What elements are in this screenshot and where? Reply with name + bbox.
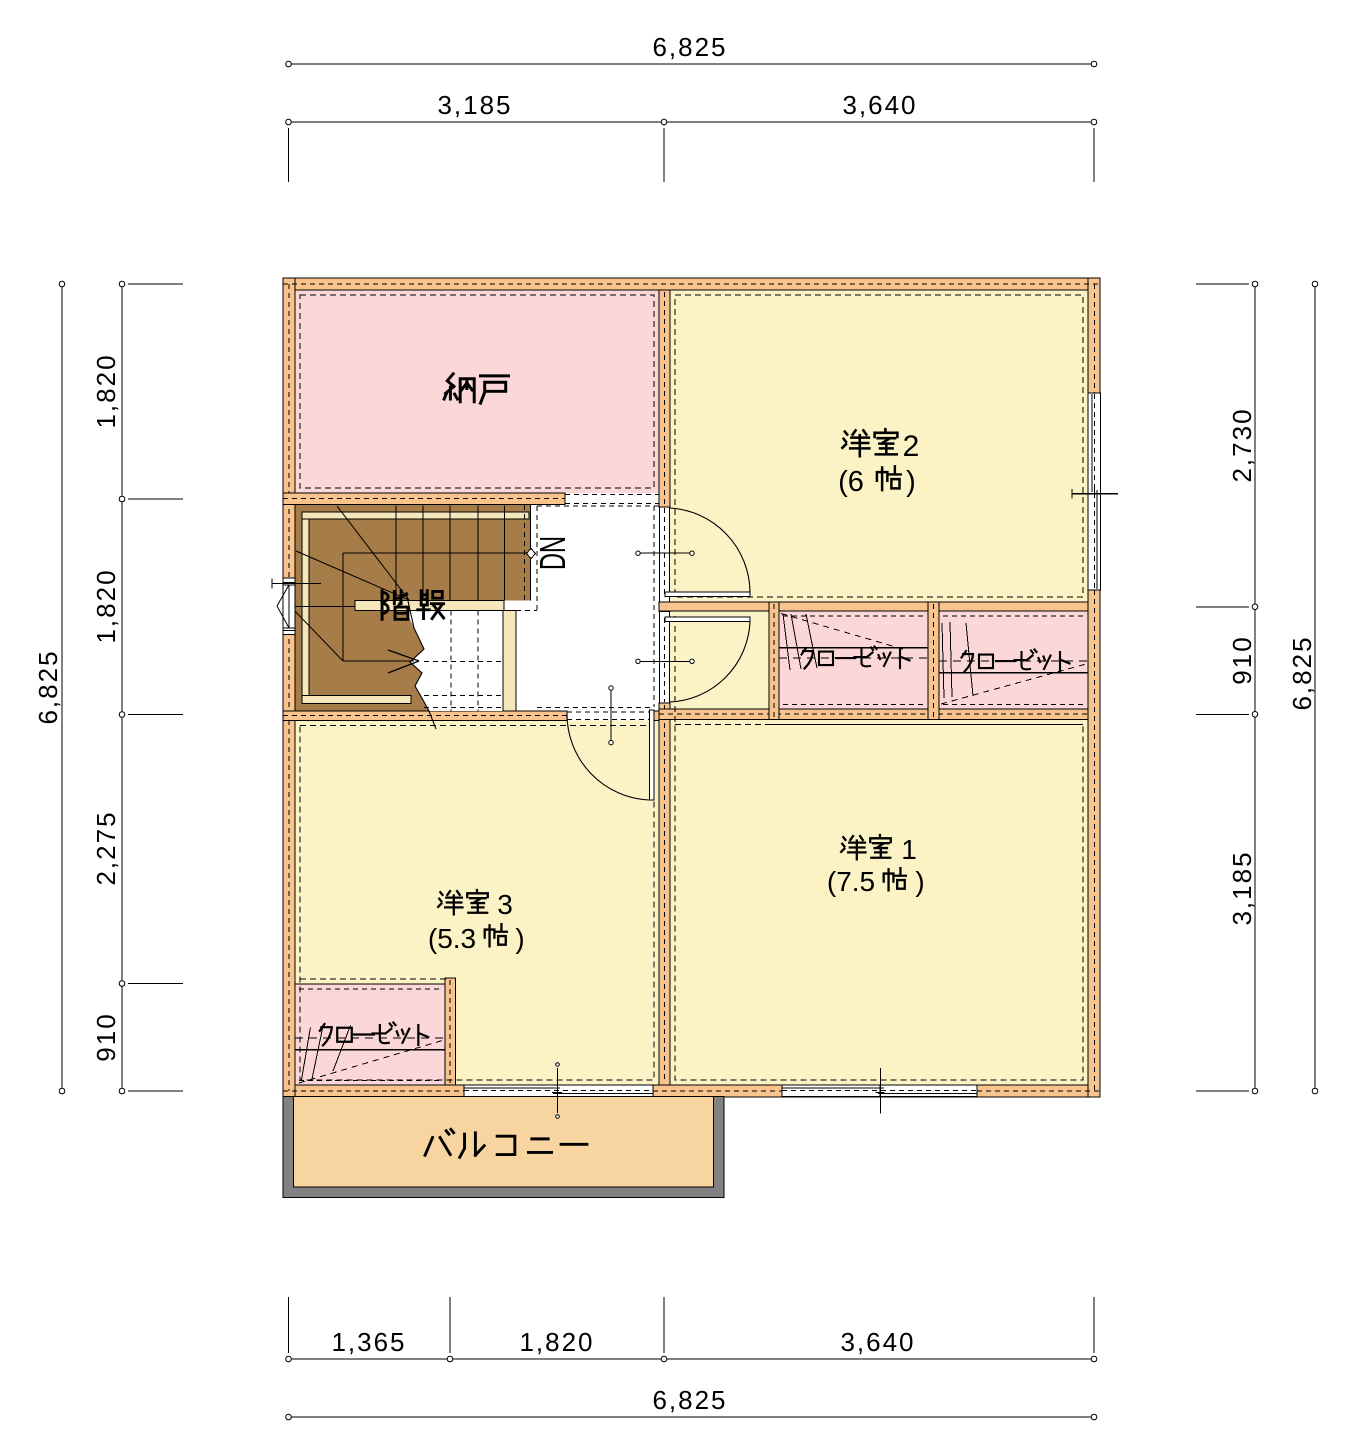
svg-text:1,820: 1,820 bbox=[91, 353, 121, 428]
svg-text:6,825: 6,825 bbox=[33, 649, 63, 724]
svg-text:): ) bbox=[906, 466, 916, 498]
svg-text:1,820: 1,820 bbox=[519, 1327, 594, 1357]
svg-text:3,185: 3,185 bbox=[437, 90, 512, 120]
svg-text:1: 1 bbox=[901, 834, 917, 865]
svg-text:1,365: 1,365 bbox=[331, 1327, 406, 1357]
svg-text:(7.5: (7.5 bbox=[827, 866, 875, 897]
svg-text:2: 2 bbox=[903, 430, 920, 463]
svg-text:3,185: 3,185 bbox=[1227, 850, 1257, 925]
svg-text:1,820: 1,820 bbox=[91, 568, 121, 643]
svg-text:DN: DN bbox=[532, 536, 573, 570]
svg-text:6,825: 6,825 bbox=[1287, 635, 1317, 710]
svg-text:3,640: 3,640 bbox=[840, 1327, 915, 1357]
svg-text:6,825: 6,825 bbox=[652, 1385, 727, 1415]
svg-text:3: 3 bbox=[497, 889, 513, 920]
svg-text:910: 910 bbox=[1227, 635, 1257, 684]
svg-text:): ) bbox=[515, 923, 524, 954]
svg-text:(6: (6 bbox=[838, 466, 864, 498]
svg-text:): ) bbox=[915, 866, 924, 897]
svg-text:6,825: 6,825 bbox=[652, 32, 727, 62]
svg-text:2,275: 2,275 bbox=[91, 810, 121, 885]
svg-text:910: 910 bbox=[91, 1012, 121, 1061]
svg-text:(5.3: (5.3 bbox=[428, 923, 476, 954]
svg-text:2,730: 2,730 bbox=[1227, 407, 1257, 482]
svg-text:3,640: 3,640 bbox=[842, 90, 917, 120]
